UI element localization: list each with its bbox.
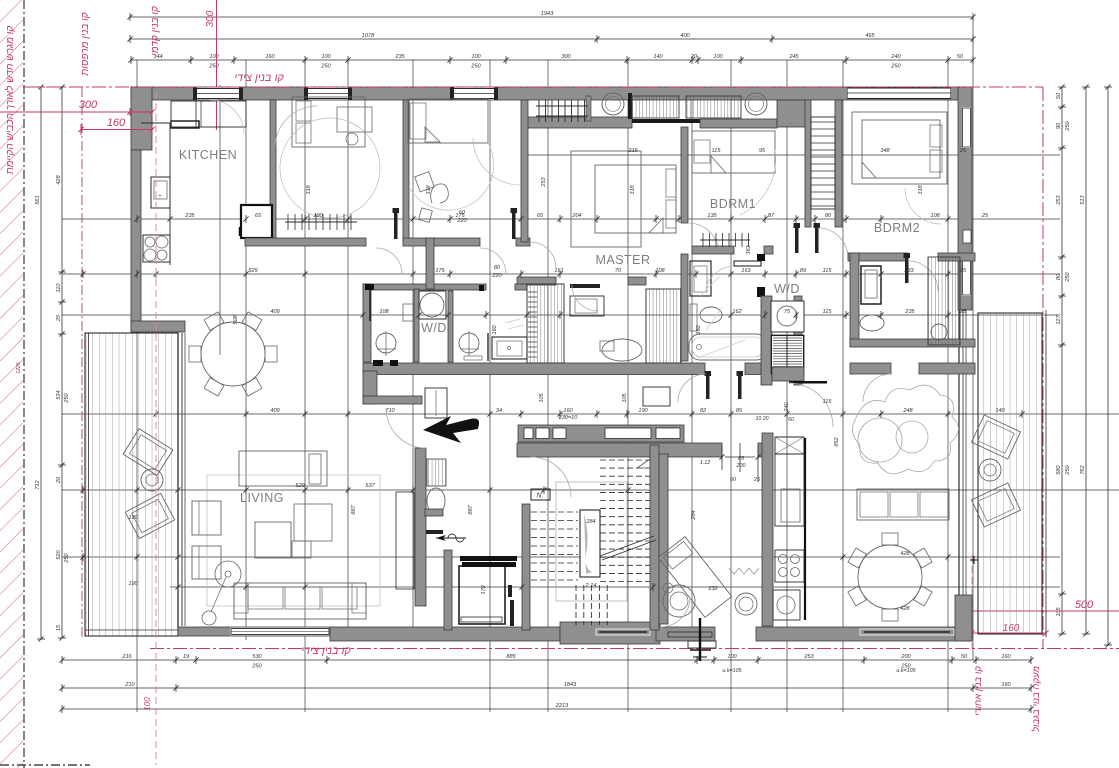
svg-text:קו בנין צידי: קו בנין צידי xyxy=(301,645,351,657)
svg-text:534: 534 xyxy=(56,390,62,399)
svg-text:2213: 2213 xyxy=(555,703,569,709)
svg-text:712: 712 xyxy=(35,479,41,489)
svg-text:50: 50 xyxy=(957,54,964,60)
svg-text:127: 127 xyxy=(1056,314,1062,324)
svg-text:82: 82 xyxy=(700,408,707,414)
svg-text:קו בנין צידי: קו בנין צידי xyxy=(234,72,284,84)
svg-text:230=10: 230=10 xyxy=(558,415,579,421)
svg-text:1943: 1943 xyxy=(541,11,554,17)
svg-text:W/D: W/D xyxy=(774,282,800,296)
svg-text:284: 284 xyxy=(585,519,595,525)
svg-text:BDRM2: BDRM2 xyxy=(874,221,920,235)
svg-text:233: 233 xyxy=(903,268,914,274)
svg-text:25: 25 xyxy=(56,314,62,322)
svg-text:70: 70 xyxy=(615,268,622,274)
svg-text:300: 300 xyxy=(79,99,98,111)
svg-text:W/D: W/D xyxy=(421,321,447,335)
svg-text:250: 250 xyxy=(64,392,70,403)
svg-text:105: 105 xyxy=(539,392,545,402)
svg-text:428: 428 xyxy=(56,174,62,184)
svg-text:קו בנין מרפסות: קו בנין מרפסות xyxy=(80,12,91,76)
svg-text:105: 105 xyxy=(1056,606,1062,616)
svg-text:710: 710 xyxy=(385,408,395,414)
svg-text:200: 200 xyxy=(900,654,911,660)
svg-text:318: 318 xyxy=(918,184,924,194)
svg-text:LIVING: LIVING xyxy=(240,491,284,505)
svg-text:140: 140 xyxy=(995,408,1005,414)
svg-text:162: 162 xyxy=(732,309,742,315)
svg-text:190: 190 xyxy=(313,213,323,219)
svg-text:89: 89 xyxy=(800,268,806,274)
svg-text:250: 250 xyxy=(251,664,262,670)
svg-text:1.12: 1.12 xyxy=(700,460,711,466)
svg-text:363: 363 xyxy=(746,244,752,254)
svg-text:190: 190 xyxy=(128,581,138,587)
svg-text:100: 100 xyxy=(321,54,331,60)
svg-text:428: 428 xyxy=(900,551,910,557)
svg-text:20: 20 xyxy=(690,54,698,60)
svg-text:887: 887 xyxy=(351,504,357,514)
svg-text:65: 65 xyxy=(537,213,544,219)
svg-text:100: 100 xyxy=(713,54,723,60)
svg-text:75: 75 xyxy=(784,309,791,315)
svg-text:529: 529 xyxy=(248,268,257,274)
svg-text:235: 235 xyxy=(904,309,915,315)
svg-text:90: 90 xyxy=(1056,122,1062,129)
svg-text:250: 250 xyxy=(1065,120,1071,131)
svg-text:220: 220 xyxy=(456,218,467,224)
svg-text:508: 508 xyxy=(233,314,239,324)
svg-text:2.14: 2.14 xyxy=(585,583,597,589)
svg-text:318: 318 xyxy=(306,184,312,194)
svg-text:284: 284 xyxy=(691,510,697,520)
svg-text:220: 220 xyxy=(491,273,502,279)
svg-text:530: 530 xyxy=(252,654,262,660)
svg-text:300: 300 xyxy=(205,10,216,27)
svg-text:215: 215 xyxy=(627,148,638,154)
svg-text:KITCHEN: KITCHEN xyxy=(179,148,237,162)
svg-text:250: 250 xyxy=(1065,464,1071,475)
svg-text:561: 561 xyxy=(35,195,41,204)
svg-text:409: 409 xyxy=(270,309,279,315)
svg-text:קו בנין קדמי: קו בנין קדמי xyxy=(150,6,161,56)
svg-text:160: 160 xyxy=(1001,682,1011,688)
svg-text:175: 175 xyxy=(435,268,445,274)
svg-text:160: 160 xyxy=(265,54,275,60)
svg-text:520: 520 xyxy=(56,549,62,559)
svg-text:253: 253 xyxy=(803,654,814,660)
svg-text:300: 300 xyxy=(561,54,571,60)
svg-text:232: 232 xyxy=(707,586,718,592)
svg-text:250: 250 xyxy=(64,552,70,563)
svg-text:34: 34 xyxy=(496,408,502,414)
svg-text:85: 85 xyxy=(736,408,743,414)
svg-text:80: 80 xyxy=(494,265,501,271)
svg-text:115: 115 xyxy=(823,399,833,405)
svg-text:885: 885 xyxy=(506,654,516,660)
svg-text:60: 60 xyxy=(788,417,794,423)
svg-text:190: 190 xyxy=(638,408,648,414)
svg-text:25: 25 xyxy=(959,268,967,274)
svg-text:887: 887 xyxy=(468,504,474,514)
svg-text:19: 19 xyxy=(183,654,189,660)
svg-text:65: 65 xyxy=(255,213,262,219)
svg-text:250: 250 xyxy=(320,64,331,70)
svg-text:108: 108 xyxy=(379,309,389,315)
svg-text:348: 348 xyxy=(880,148,890,154)
svg-text:204: 204 xyxy=(571,213,581,219)
svg-text:25: 25 xyxy=(959,309,967,315)
svg-text:513: 513 xyxy=(1080,194,1086,204)
svg-text:1843: 1843 xyxy=(564,682,577,688)
svg-text:500: 500 xyxy=(1075,599,1094,611)
svg-text:N.: N. xyxy=(537,493,544,500)
svg-text:100: 100 xyxy=(471,54,481,60)
svg-text:115: 115 xyxy=(823,268,833,274)
svg-text:240: 240 xyxy=(890,54,901,60)
svg-text:161: 161 xyxy=(554,268,563,274)
svg-text:10 20: 10 20 xyxy=(756,416,769,422)
svg-text:529: 529 xyxy=(295,483,304,489)
svg-text:200: 200 xyxy=(736,463,746,469)
svg-text:115: 115 xyxy=(712,148,722,154)
svg-text:100: 100 xyxy=(143,697,152,711)
svg-text:216: 216 xyxy=(121,654,132,660)
svg-text:235: 235 xyxy=(184,213,195,219)
svg-text:210: 210 xyxy=(124,682,135,688)
svg-text:u.k=105: u.k=105 xyxy=(896,668,916,674)
svg-text:428: 428 xyxy=(900,606,910,612)
svg-text:קו מגרש חדש לאורך הכביש הקיימת: קו מגרש חדש לאורך הכביש הקיימת xyxy=(4,26,16,176)
svg-text:250: 250 xyxy=(208,64,219,70)
svg-text:60: 60 xyxy=(459,210,466,216)
svg-text:400: 400 xyxy=(680,33,690,39)
svg-text:u.k=105: u.k=105 xyxy=(722,668,742,674)
svg-text:80: 80 xyxy=(1056,273,1062,280)
svg-text:87: 87 xyxy=(768,213,775,219)
svg-text:160: 160 xyxy=(563,408,573,414)
svg-text:253: 253 xyxy=(541,176,547,187)
svg-text:250: 250 xyxy=(1065,271,1071,282)
svg-text:762: 762 xyxy=(1080,464,1086,474)
svg-text:MASTER: MASTER xyxy=(595,253,650,267)
svg-text:140: 140 xyxy=(653,54,663,60)
svg-text:+: + xyxy=(158,192,162,200)
svg-text:1078: 1078 xyxy=(362,33,375,39)
svg-text:409: 409 xyxy=(270,408,279,414)
svg-text:160: 160 xyxy=(1001,654,1011,660)
svg-text:100: 100 xyxy=(727,654,737,660)
svg-text:50: 50 xyxy=(961,654,968,660)
svg-text:250: 250 xyxy=(890,64,901,70)
svg-text:25: 25 xyxy=(959,148,967,154)
svg-text:BDRM1: BDRM1 xyxy=(710,197,756,211)
svg-text:105: 105 xyxy=(622,392,628,402)
svg-text:108: 108 xyxy=(930,213,940,219)
svg-text:60: 60 xyxy=(730,477,736,483)
svg-text:קו בנין אחורי: קו בנין אחורי xyxy=(973,666,984,716)
svg-text:100: 100 xyxy=(209,54,219,60)
svg-text:852: 852 xyxy=(834,436,840,446)
svg-text:50: 50 xyxy=(1056,92,1062,99)
svg-text:160: 160 xyxy=(107,117,126,129)
svg-text:250: 250 xyxy=(470,64,481,70)
svg-text:318: 318 xyxy=(426,184,432,194)
svg-text:235: 235 xyxy=(394,54,405,60)
svg-text:25: 25 xyxy=(981,213,989,219)
svg-text:248: 248 xyxy=(902,408,913,414)
svg-text:80: 80 xyxy=(825,213,832,219)
svg-text:135: 135 xyxy=(707,213,717,219)
svg-text:115: 115 xyxy=(823,309,833,315)
svg-text:318: 318 xyxy=(630,184,636,194)
svg-text:15: 15 xyxy=(56,624,62,631)
svg-text:95: 95 xyxy=(759,148,766,154)
svg-text:537: 537 xyxy=(365,483,375,489)
svg-text:170: 170 xyxy=(481,584,487,594)
svg-text:25: 25 xyxy=(753,477,761,483)
svg-text:190: 190 xyxy=(128,515,138,521)
svg-text:110: 110 xyxy=(56,283,62,293)
svg-text:מעקה בנוי בגבול: מעקה בנוי בגבול xyxy=(1030,666,1042,732)
svg-text:580: 580 xyxy=(1056,464,1062,474)
svg-text:160: 160 xyxy=(696,324,702,334)
svg-text:1225: 1225 xyxy=(16,362,22,373)
svg-text:245: 245 xyxy=(788,54,799,60)
svg-text:20: 20 xyxy=(56,476,62,484)
svg-text:163: 163 xyxy=(741,268,751,274)
svg-text:465: 465 xyxy=(865,33,875,39)
svg-text:160: 160 xyxy=(492,324,498,334)
svg-text:253: 253 xyxy=(1056,194,1062,205)
